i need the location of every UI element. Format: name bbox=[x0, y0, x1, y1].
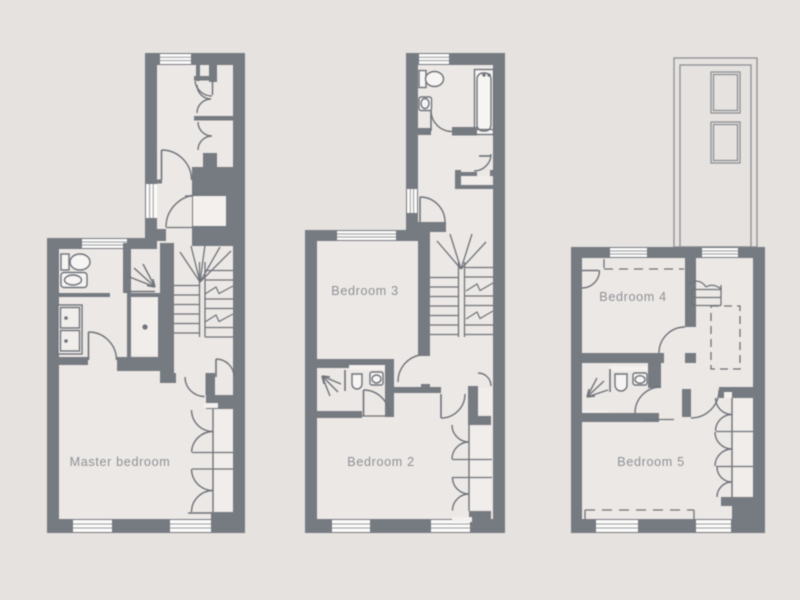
svg-text:Bedroom 4: Bedroom 4 bbox=[599, 290, 666, 304]
svg-text:Bedroom 5: Bedroom 5 bbox=[617, 455, 684, 469]
svg-text:Master bedroom: Master bedroom bbox=[70, 455, 171, 469]
svg-text:Bedroom 2: Bedroom 2 bbox=[347, 455, 414, 469]
svg-text:Bedroom 3: Bedroom 3 bbox=[331, 284, 398, 298]
